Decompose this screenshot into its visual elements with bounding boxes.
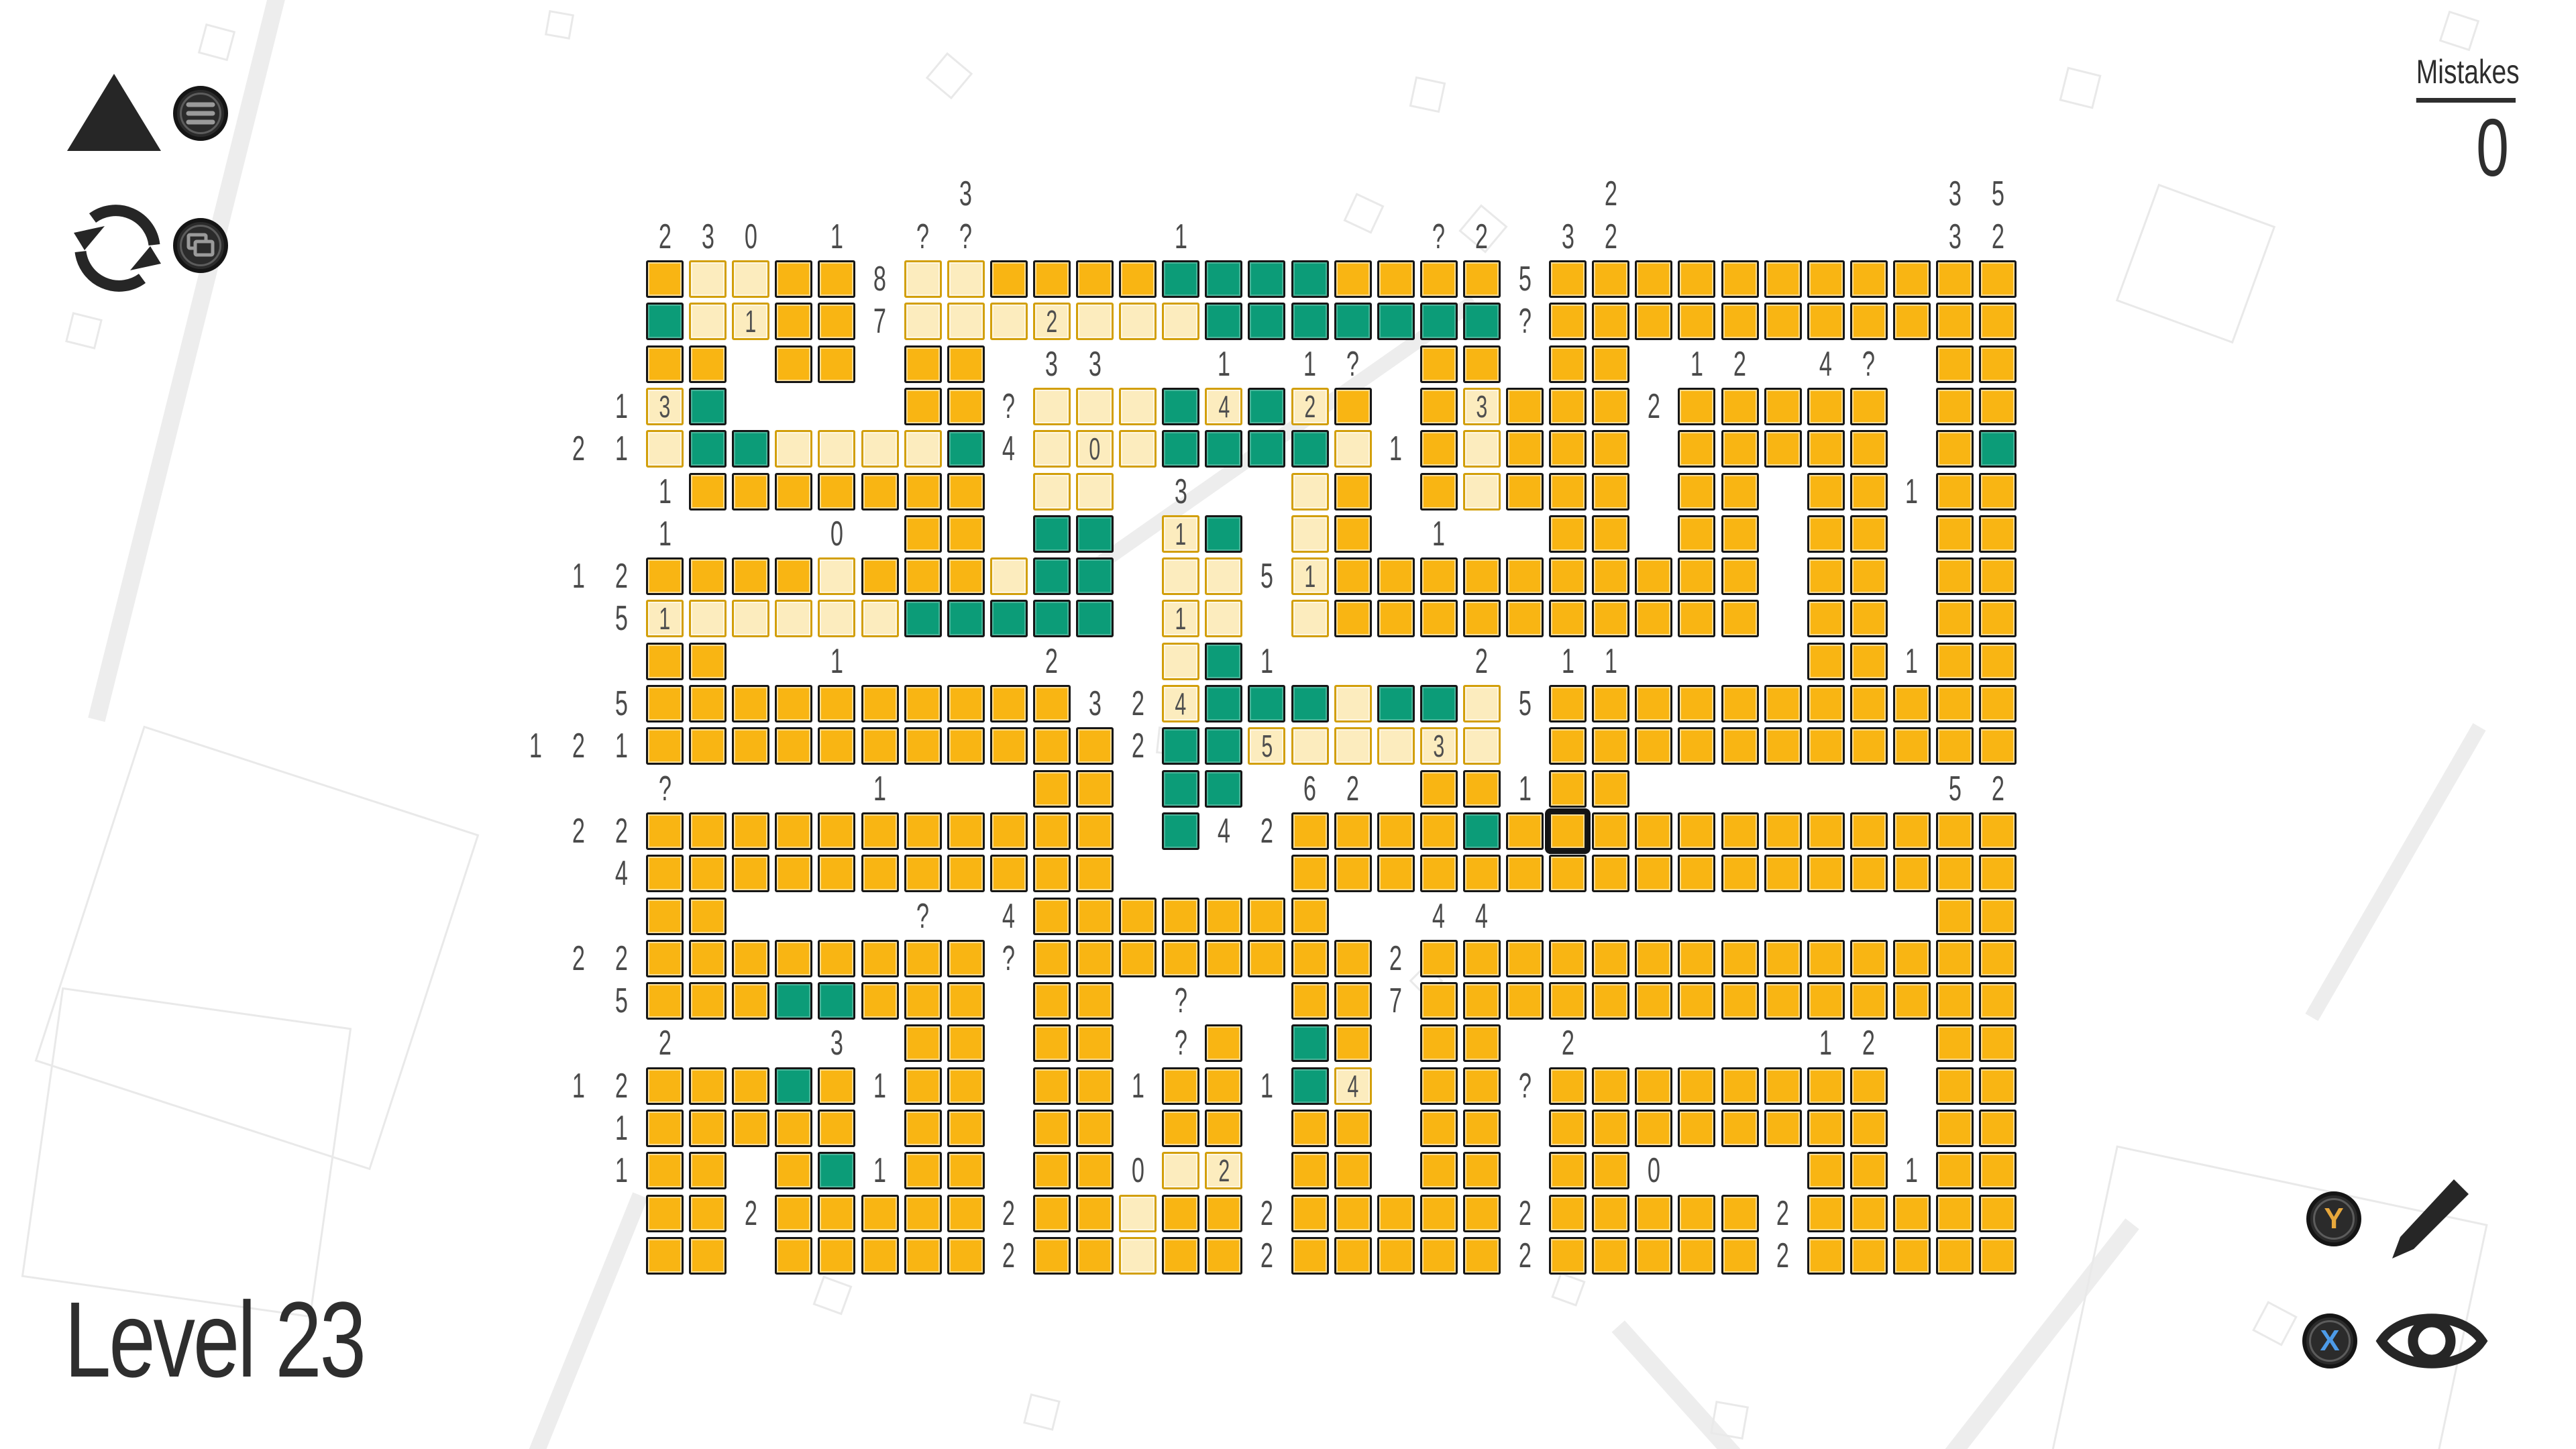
unrevealed-tile[interactable] bbox=[646, 1152, 684, 1189]
revealed-tile[interactable] bbox=[1119, 388, 1157, 425]
unrevealed-tile[interactable] bbox=[1334, 260, 1372, 298]
unrevealed-tile[interactable] bbox=[1764, 727, 1802, 765]
unrevealed-tile[interactable] bbox=[1807, 557, 1845, 595]
unrevealed-tile[interactable] bbox=[1936, 1024, 1974, 1062]
unrevealed-tile[interactable] bbox=[990, 260, 1028, 298]
revealed-tile[interactable]: 3 bbox=[1420, 727, 1458, 765]
revealed-tile[interactable]: 1 bbox=[646, 600, 684, 637]
revealed-tile[interactable] bbox=[732, 600, 769, 637]
unrevealed-tile[interactable] bbox=[732, 557, 769, 595]
unrevealed-tile[interactable] bbox=[1850, 388, 1888, 425]
unrevealed-tile[interactable] bbox=[1721, 1195, 1759, 1232]
unrevealed-tile[interactable] bbox=[1850, 643, 1888, 680]
revealed-tile[interactable] bbox=[732, 260, 769, 298]
unrevealed-tile[interactable] bbox=[1979, 940, 2017, 977]
unrevealed-tile[interactable] bbox=[1807, 643, 1845, 680]
unrevealed-tile[interactable] bbox=[1076, 727, 1114, 765]
flagged-tile[interactable] bbox=[646, 303, 684, 340]
unrevealed-tile[interactable] bbox=[1506, 473, 1544, 511]
unrevealed-tile[interactable] bbox=[1463, 982, 1501, 1020]
unrevealed-tile[interactable] bbox=[1635, 812, 1672, 850]
unrevealed-tile[interactable] bbox=[861, 685, 899, 722]
unrevealed-tile[interactable] bbox=[1635, 855, 1672, 892]
unrevealed-tile[interactable] bbox=[1549, 345, 1587, 383]
unrevealed-tile[interactable] bbox=[689, 855, 727, 892]
unrevealed-tile[interactable] bbox=[1033, 685, 1071, 722]
unrevealed-tile[interactable] bbox=[689, 982, 727, 1020]
unrevealed-tile[interactable] bbox=[1807, 727, 1845, 765]
unrevealed-tile[interactable] bbox=[1506, 982, 1544, 1020]
unrevealed-tile[interactable] bbox=[1334, 1195, 1372, 1232]
revealed-tile[interactable] bbox=[1463, 685, 1501, 722]
unrevealed-tile[interactable] bbox=[1033, 982, 1071, 1020]
revealed-tile[interactable] bbox=[1162, 557, 1199, 595]
unrevealed-tile[interactable] bbox=[1721, 430, 1759, 468]
flagged-tile[interactable] bbox=[1248, 388, 1285, 425]
revealed-tile[interactable] bbox=[1377, 727, 1415, 765]
unrevealed-tile[interactable] bbox=[1936, 430, 1974, 468]
unrevealed-tile[interactable] bbox=[1936, 855, 1974, 892]
unrevealed-tile[interactable] bbox=[1463, 770, 1501, 808]
unrevealed-tile[interactable] bbox=[1635, 260, 1672, 298]
unrevealed-tile[interactable] bbox=[1979, 345, 2017, 383]
unrevealed-tile[interactable] bbox=[947, 473, 985, 511]
unrevealed-tile[interactable] bbox=[904, 388, 942, 425]
unrevealed-tile[interactable] bbox=[1893, 260, 1931, 298]
unrevealed-tile[interactable] bbox=[1205, 1024, 1242, 1062]
unrevealed-tile[interactable] bbox=[1592, 1152, 1629, 1189]
unrevealed-tile[interactable] bbox=[646, 1067, 684, 1105]
unrevealed-tile[interactable] bbox=[1291, 1152, 1329, 1189]
revealed-tile[interactable]: 1 bbox=[1291, 557, 1329, 595]
unrevealed-tile[interactable] bbox=[1764, 982, 1802, 1020]
unrevealed-tile[interactable] bbox=[1420, 473, 1458, 511]
unrevealed-tile[interactable] bbox=[1463, 345, 1501, 383]
flagged-tile[interactable] bbox=[1291, 685, 1329, 722]
unrevealed-tile[interactable] bbox=[1205, 940, 1242, 977]
unrevealed-tile[interactable] bbox=[1807, 260, 1845, 298]
unrevealed-tile[interactable] bbox=[1678, 727, 1715, 765]
revealed-tile[interactable]: 1 bbox=[1162, 515, 1199, 553]
unrevealed-tile[interactable] bbox=[818, 1237, 855, 1275]
unrevealed-tile[interactable] bbox=[990, 727, 1028, 765]
unrevealed-tile[interactable] bbox=[904, 557, 942, 595]
unrevealed-tile[interactable] bbox=[1334, 1152, 1372, 1189]
gamepad-y-button[interactable]: Y bbox=[2306, 1191, 2361, 1246]
flagged-tile[interactable] bbox=[1291, 1067, 1329, 1105]
unrevealed-tile[interactable] bbox=[1807, 812, 1845, 850]
unrevealed-tile[interactable] bbox=[689, 940, 727, 977]
unrevealed-tile[interactable] bbox=[1721, 557, 1759, 595]
unrevealed-tile[interactable] bbox=[1463, 557, 1501, 595]
unrevealed-tile[interactable] bbox=[904, 855, 942, 892]
unrevealed-tile[interactable] bbox=[1721, 388, 1759, 425]
unrevealed-tile[interactable] bbox=[1420, 1067, 1458, 1105]
flagged-tile[interactable] bbox=[1248, 685, 1285, 722]
unrevealed-tile[interactable] bbox=[904, 1024, 942, 1062]
unrevealed-tile[interactable] bbox=[1936, 812, 1974, 850]
unrevealed-tile[interactable] bbox=[1678, 1237, 1715, 1275]
revealed-tile[interactable] bbox=[990, 557, 1028, 595]
flagged-tile[interactable] bbox=[1420, 685, 1458, 722]
revealed-tile[interactable] bbox=[1291, 473, 1329, 511]
unrevealed-tile[interactable] bbox=[1592, 812, 1629, 850]
unrevealed-tile[interactable] bbox=[1807, 600, 1845, 637]
unrevealed-tile[interactable] bbox=[1850, 1110, 1888, 1147]
unrevealed-tile[interactable] bbox=[1549, 430, 1587, 468]
unrevealed-tile[interactable] bbox=[1592, 260, 1629, 298]
unrevealed-tile[interactable] bbox=[1506, 812, 1544, 850]
unrevealed-tile[interactable] bbox=[1635, 685, 1672, 722]
unrevealed-tile[interactable] bbox=[818, 1195, 855, 1232]
unrevealed-tile[interactable] bbox=[1377, 1195, 1415, 1232]
unrevealed-tile[interactable] bbox=[1936, 1110, 1974, 1147]
unrevealed-tile[interactable] bbox=[1936, 727, 1974, 765]
unrevealed-tile[interactable] bbox=[1635, 940, 1672, 977]
unrevealed-tile[interactable] bbox=[1506, 855, 1544, 892]
unrevealed-tile[interactable] bbox=[1377, 600, 1415, 637]
unrevealed-tile[interactable] bbox=[1979, 643, 2017, 680]
unrevealed-tile[interactable] bbox=[1807, 1152, 1845, 1189]
unrevealed-tile[interactable] bbox=[1549, 557, 1587, 595]
unrevealed-tile[interactable] bbox=[947, 812, 985, 850]
flagged-tile[interactable] bbox=[1291, 1024, 1329, 1062]
unrevealed-tile[interactable] bbox=[1635, 557, 1672, 595]
unrevealed-tile[interactable] bbox=[1377, 260, 1415, 298]
unrevealed-tile[interactable] bbox=[1420, 345, 1458, 383]
unrevealed-tile[interactable] bbox=[1463, 1195, 1501, 1232]
flagged-tile[interactable] bbox=[1205, 770, 1242, 808]
flagged-tile[interactable] bbox=[1463, 812, 1501, 850]
unrevealed-tile[interactable] bbox=[1334, 940, 1372, 977]
unrevealed-tile[interactable] bbox=[689, 1067, 727, 1105]
unrevealed-tile[interactable] bbox=[1033, 1110, 1071, 1147]
unrevealed-tile[interactable] bbox=[990, 855, 1028, 892]
unrevealed-tile[interactable] bbox=[775, 855, 812, 892]
unrevealed-tile[interactable] bbox=[1764, 812, 1802, 850]
unrevealed-tile[interactable] bbox=[1807, 473, 1845, 511]
flagged-tile[interactable] bbox=[1162, 260, 1199, 298]
unrevealed-tile[interactable] bbox=[1850, 260, 1888, 298]
flagged-tile[interactable] bbox=[1162, 770, 1199, 808]
unrevealed-tile[interactable] bbox=[689, 1110, 727, 1147]
unrevealed-tile[interactable] bbox=[904, 982, 942, 1020]
unrevealed-tile[interactable] bbox=[1119, 898, 1157, 935]
revealed-tile[interactable] bbox=[861, 600, 899, 637]
revealed-tile[interactable]: 5 bbox=[1248, 727, 1285, 765]
unrevealed-tile[interactable] bbox=[1893, 685, 1931, 722]
unrevealed-tile[interactable] bbox=[1033, 812, 1071, 850]
unrevealed-tile[interactable] bbox=[1549, 685, 1587, 722]
flagged-tile[interactable] bbox=[818, 982, 855, 1020]
unrevealed-tile[interactable] bbox=[1334, 388, 1372, 425]
unrevealed-tile[interactable] bbox=[732, 1067, 769, 1105]
unrevealed-tile[interactable] bbox=[1205, 1110, 1242, 1147]
unrevealed-tile[interactable] bbox=[646, 685, 684, 722]
revealed-tile[interactable] bbox=[1119, 1237, 1157, 1275]
unrevealed-tile[interactable] bbox=[775, 1195, 812, 1232]
flagged-tile[interactable] bbox=[1162, 727, 1199, 765]
unrevealed-tile[interactable] bbox=[1592, 982, 1629, 1020]
unrevealed-tile[interactable] bbox=[1076, 855, 1114, 892]
unrevealed-tile[interactable] bbox=[1033, 1237, 1071, 1275]
unrevealed-tile[interactable] bbox=[1463, 940, 1501, 977]
unrevealed-tile[interactable] bbox=[1033, 770, 1071, 808]
unrevealed-tile[interactable] bbox=[861, 557, 899, 595]
revealed-tile[interactable] bbox=[904, 260, 942, 298]
unrevealed-tile[interactable] bbox=[1979, 1067, 2017, 1105]
unrevealed-tile[interactable] bbox=[1807, 1237, 1845, 1275]
unrevealed-tile[interactable] bbox=[646, 812, 684, 850]
unrevealed-tile[interactable] bbox=[1549, 1195, 1587, 1232]
unrevealed-tile[interactable] bbox=[1979, 473, 2017, 511]
unrevealed-tile[interactable] bbox=[1248, 898, 1285, 935]
unrevealed-tile[interactable] bbox=[1549, 388, 1587, 425]
unrevealed-tile[interactable] bbox=[1979, 1237, 2017, 1275]
unrevealed-tile[interactable] bbox=[1979, 557, 2017, 595]
unrevealed-tile[interactable] bbox=[1979, 1024, 2017, 1062]
unrevealed-tile[interactable] bbox=[818, 855, 855, 892]
unrevealed-tile[interactable] bbox=[947, 557, 985, 595]
unrevealed-tile[interactable] bbox=[1506, 940, 1544, 977]
unrevealed-tile[interactable] bbox=[1033, 1024, 1071, 1062]
flagged-tile[interactable] bbox=[1334, 303, 1372, 340]
unrevealed-tile[interactable] bbox=[1076, 1195, 1114, 1232]
unrevealed-tile[interactable] bbox=[861, 727, 899, 765]
unrevealed-tile[interactable] bbox=[1033, 1067, 1071, 1105]
unrevealed-tile[interactable] bbox=[1549, 1110, 1587, 1147]
unrevealed-tile[interactable] bbox=[1420, 600, 1458, 637]
unrevealed-tile[interactable] bbox=[1463, 1067, 1501, 1105]
unrevealed-tile[interactable] bbox=[1592, 303, 1629, 340]
revealed-tile[interactable] bbox=[990, 303, 1028, 340]
cursor-tile[interactable] bbox=[1549, 812, 1587, 850]
unrevealed-tile[interactable] bbox=[775, 303, 812, 340]
unrevealed-tile[interactable] bbox=[1033, 940, 1071, 977]
unrevealed-tile[interactable] bbox=[1850, 515, 1888, 553]
unrevealed-tile[interactable] bbox=[1936, 1152, 1974, 1189]
unrevealed-tile[interactable] bbox=[689, 1195, 727, 1232]
flagged-tile[interactable] bbox=[947, 430, 985, 468]
flagged-tile[interactable] bbox=[1377, 303, 1415, 340]
flagged-tile[interactable] bbox=[1979, 430, 2017, 468]
unrevealed-tile[interactable] bbox=[775, 940, 812, 977]
unrevealed-tile[interactable] bbox=[1893, 940, 1931, 977]
unrevealed-tile[interactable] bbox=[689, 727, 727, 765]
unrevealed-tile[interactable] bbox=[1764, 388, 1802, 425]
flagged-tile[interactable] bbox=[1248, 260, 1285, 298]
unrevealed-tile[interactable] bbox=[1936, 303, 1974, 340]
unrevealed-tile[interactable] bbox=[732, 982, 769, 1020]
unrevealed-tile[interactable] bbox=[1678, 388, 1715, 425]
unrevealed-tile[interactable] bbox=[947, 1195, 985, 1232]
unrevealed-tile[interactable] bbox=[1119, 260, 1157, 298]
unrevealed-tile[interactable] bbox=[1893, 812, 1931, 850]
flagged-tile[interactable] bbox=[1033, 515, 1071, 553]
unrevealed-tile[interactable] bbox=[1506, 557, 1544, 595]
unrevealed-tile[interactable] bbox=[1635, 600, 1672, 637]
unrevealed-tile[interactable] bbox=[689, 557, 727, 595]
unrevealed-tile[interactable] bbox=[1979, 685, 2017, 722]
unrevealed-tile[interactable] bbox=[775, 345, 812, 383]
unrevealed-tile[interactable] bbox=[1721, 982, 1759, 1020]
unrevealed-tile[interactable] bbox=[818, 345, 855, 383]
unrevealed-tile[interactable] bbox=[1377, 812, 1415, 850]
unrevealed-tile[interactable] bbox=[1635, 1110, 1672, 1147]
unrevealed-tile[interactable] bbox=[1334, 982, 1372, 1020]
unrevealed-tile[interactable] bbox=[1979, 388, 2017, 425]
unrevealed-tile[interactable] bbox=[1076, 812, 1114, 850]
revealed-tile[interactable]: 4 bbox=[1334, 1067, 1372, 1105]
unrevealed-tile[interactable] bbox=[1377, 855, 1415, 892]
unrevealed-tile[interactable] bbox=[1162, 1237, 1199, 1275]
flagged-tile[interactable] bbox=[1076, 515, 1114, 553]
unrevealed-tile[interactable] bbox=[1764, 940, 1802, 977]
unrevealed-tile[interactable] bbox=[732, 727, 769, 765]
unrevealed-tile[interactable] bbox=[1850, 600, 1888, 637]
unrevealed-tile[interactable] bbox=[818, 812, 855, 850]
unrevealed-tile[interactable] bbox=[1549, 473, 1587, 511]
unrevealed-tile[interactable] bbox=[1807, 1195, 1845, 1232]
unrevealed-tile[interactable] bbox=[1635, 1237, 1672, 1275]
unrevealed-tile[interactable] bbox=[1334, 557, 1372, 595]
unrevealed-tile[interactable] bbox=[646, 1237, 684, 1275]
unrevealed-tile[interactable] bbox=[947, 345, 985, 383]
flagged-tile[interactable] bbox=[1205, 685, 1242, 722]
unrevealed-tile[interactable] bbox=[1549, 727, 1587, 765]
unrevealed-tile[interactable] bbox=[1850, 940, 1888, 977]
revealed-tile[interactable] bbox=[1033, 473, 1071, 511]
unrevealed-tile[interactable] bbox=[1592, 727, 1629, 765]
unrevealed-tile[interactable] bbox=[1549, 600, 1587, 637]
unrevealed-tile[interactable] bbox=[1764, 303, 1802, 340]
flagged-tile[interactable] bbox=[904, 600, 942, 637]
unrevealed-tile[interactable] bbox=[1033, 260, 1071, 298]
revealed-tile[interactable] bbox=[947, 260, 985, 298]
unrevealed-tile[interactable] bbox=[904, 473, 942, 511]
unrevealed-tile[interactable] bbox=[1721, 600, 1759, 637]
unrevealed-tile[interactable] bbox=[947, 1024, 985, 1062]
unrevealed-tile[interactable] bbox=[1592, 388, 1629, 425]
revealed-tile[interactable] bbox=[818, 600, 855, 637]
flagged-tile[interactable] bbox=[1076, 600, 1114, 637]
revealed-tile[interactable] bbox=[1463, 727, 1501, 765]
unrevealed-tile[interactable] bbox=[1807, 855, 1845, 892]
revealed-tile[interactable] bbox=[904, 303, 942, 340]
revealed-tile[interactable]: 1 bbox=[732, 303, 769, 340]
unrevealed-tile[interactable] bbox=[1721, 727, 1759, 765]
unrevealed-tile[interactable] bbox=[1936, 1237, 1974, 1275]
unrevealed-tile[interactable] bbox=[904, 940, 942, 977]
revealed-tile[interactable] bbox=[1119, 1195, 1157, 1232]
unrevealed-tile[interactable] bbox=[1721, 1110, 1759, 1147]
unrevealed-tile[interactable] bbox=[1592, 515, 1629, 553]
unrevealed-tile[interactable] bbox=[646, 727, 684, 765]
flagged-tile[interactable] bbox=[1205, 643, 1242, 680]
unrevealed-tile[interactable] bbox=[904, 812, 942, 850]
unrevealed-tile[interactable] bbox=[1979, 982, 2017, 1020]
unrevealed-tile[interactable] bbox=[646, 940, 684, 977]
unrevealed-tile[interactable] bbox=[1291, 982, 1329, 1020]
unrevealed-tile[interactable] bbox=[1549, 1237, 1587, 1275]
unrevealed-tile[interactable] bbox=[1979, 1152, 2017, 1189]
unrevealed-tile[interactable] bbox=[1936, 982, 1974, 1020]
unrevealed-tile[interactable] bbox=[775, 1152, 812, 1189]
revealed-tile[interactable] bbox=[775, 600, 812, 637]
unrevealed-tile[interactable] bbox=[1162, 940, 1199, 977]
unrevealed-tile[interactable] bbox=[775, 727, 812, 765]
unrevealed-tile[interactable] bbox=[689, 345, 727, 383]
unrevealed-tile[interactable] bbox=[1850, 685, 1888, 722]
flagged-tile[interactable] bbox=[1033, 557, 1071, 595]
unrevealed-tile[interactable] bbox=[732, 685, 769, 722]
unrevealed-tile[interactable] bbox=[1979, 1110, 2017, 1147]
unrevealed-tile[interactable] bbox=[1678, 303, 1715, 340]
unrevealed-tile[interactable] bbox=[1291, 898, 1329, 935]
flagged-tile[interactable] bbox=[1205, 515, 1242, 553]
unrevealed-tile[interactable] bbox=[1850, 430, 1888, 468]
unrevealed-tile[interactable] bbox=[1678, 685, 1715, 722]
unrevealed-tile[interactable] bbox=[1850, 812, 1888, 850]
unrevealed-tile[interactable] bbox=[1248, 940, 1285, 977]
unrevealed-tile[interactable] bbox=[646, 345, 684, 383]
unrevealed-tile[interactable] bbox=[1033, 1195, 1071, 1232]
unrevealed-tile[interactable] bbox=[1592, 1195, 1629, 1232]
unrevealed-tile[interactable] bbox=[732, 473, 769, 511]
unrevealed-tile[interactable] bbox=[1936, 1195, 1974, 1232]
unrevealed-tile[interactable] bbox=[1807, 515, 1845, 553]
unrevealed-tile[interactable] bbox=[990, 812, 1028, 850]
unrevealed-tile[interactable] bbox=[1334, 1237, 1372, 1275]
unrevealed-tile[interactable] bbox=[775, 812, 812, 850]
revealed-tile[interactable] bbox=[1463, 473, 1501, 511]
unrevealed-tile[interactable] bbox=[1033, 898, 1071, 935]
revealed-tile[interactable] bbox=[689, 600, 727, 637]
flagged-tile[interactable] bbox=[1291, 303, 1329, 340]
unrevealed-tile[interactable] bbox=[1592, 1237, 1629, 1275]
menu-button[interactable] bbox=[173, 86, 228, 141]
unrevealed-tile[interactable] bbox=[1893, 1237, 1931, 1275]
unrevealed-tile[interactable] bbox=[1463, 1237, 1501, 1275]
flagged-tile[interactable] bbox=[1248, 430, 1285, 468]
unrevealed-tile[interactable] bbox=[646, 557, 684, 595]
unrevealed-tile[interactable] bbox=[1463, 260, 1501, 298]
flagged-tile[interactable] bbox=[990, 600, 1028, 637]
unrevealed-tile[interactable] bbox=[775, 473, 812, 511]
unrevealed-tile[interactable] bbox=[947, 727, 985, 765]
unrevealed-tile[interactable] bbox=[1678, 430, 1715, 468]
unrevealed-tile[interactable] bbox=[1764, 1110, 1802, 1147]
unrevealed-tile[interactable] bbox=[1076, 1024, 1114, 1062]
unrevealed-tile[interactable] bbox=[1936, 473, 1974, 511]
flagged-tile[interactable] bbox=[689, 388, 727, 425]
revealed-tile[interactable]: 3 bbox=[646, 388, 684, 425]
unrevealed-tile[interactable] bbox=[775, 685, 812, 722]
unrevealed-tile[interactable] bbox=[1936, 1067, 1974, 1105]
flagged-tile[interactable] bbox=[1033, 600, 1071, 637]
unrevealed-tile[interactable] bbox=[861, 1237, 899, 1275]
unrevealed-tile[interactable] bbox=[1549, 982, 1587, 1020]
revealed-tile[interactable] bbox=[1291, 515, 1329, 553]
unrevealed-tile[interactable] bbox=[1807, 685, 1845, 722]
unrevealed-tile[interactable] bbox=[689, 1152, 727, 1189]
unrevealed-tile[interactable] bbox=[1205, 898, 1242, 935]
unrevealed-tile[interactable] bbox=[1850, 982, 1888, 1020]
unrevealed-tile[interactable] bbox=[1076, 1237, 1114, 1275]
unrevealed-tile[interactable] bbox=[1721, 303, 1759, 340]
revealed-tile[interactable] bbox=[1162, 303, 1199, 340]
unrevealed-tile[interactable] bbox=[1076, 260, 1114, 298]
